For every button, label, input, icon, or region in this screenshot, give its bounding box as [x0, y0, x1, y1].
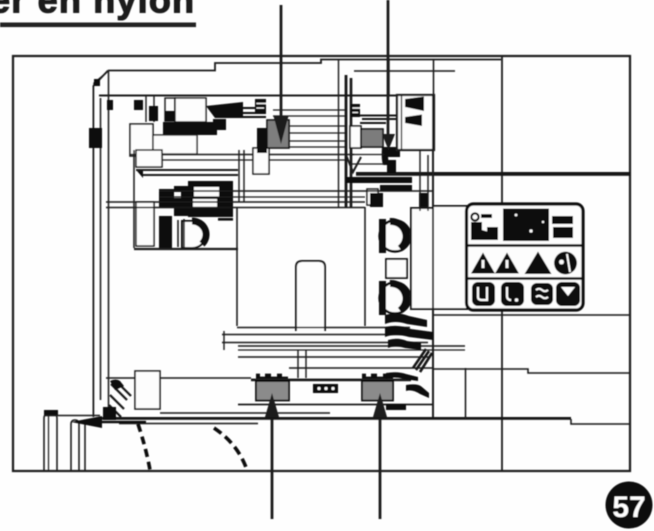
svg-text:er en nylon: er en nylon [0, 0, 195, 21]
svg-text:57: 57 [612, 491, 645, 524]
